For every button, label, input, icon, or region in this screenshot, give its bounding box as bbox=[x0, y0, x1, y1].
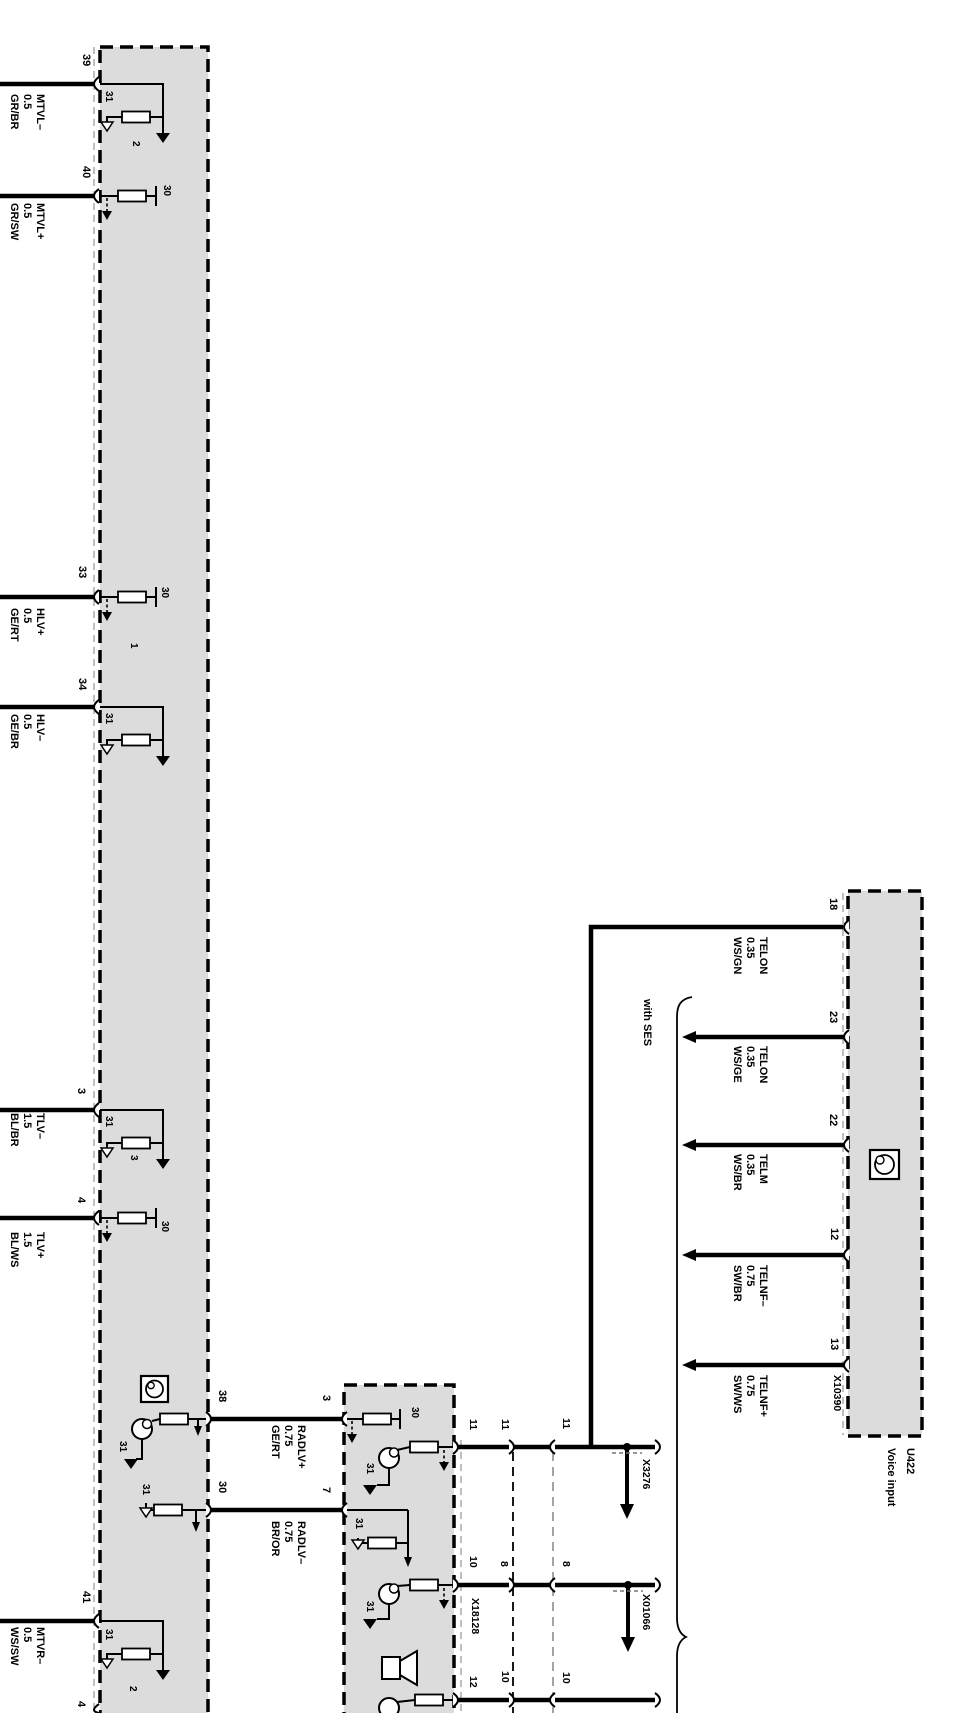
speaker-icon bbox=[141, 1376, 168, 1402]
wire-label: TELON 0.35 WS/GE bbox=[730, 1046, 769, 1083]
pin-number: 18 bbox=[826, 898, 839, 910]
wire-label: HLV+ 0.5 GE/RT bbox=[7, 608, 46, 642]
pin-number: 39 bbox=[79, 54, 92, 66]
terminal-label: 31 bbox=[364, 1463, 375, 1474]
pin-number: 3 bbox=[74, 1088, 87, 1094]
wire-label: TELON 0.35 WS/GN bbox=[730, 937, 769, 974]
terminal-label: 30 bbox=[159, 1221, 170, 1232]
terminal-label: 31 bbox=[117, 1441, 128, 1452]
pin-number: 8 bbox=[497, 1561, 510, 1567]
pin-number: 11 bbox=[466, 1419, 479, 1430]
wire-label: TELM 0.35 WS/BR bbox=[730, 1154, 769, 1191]
component-name: Voice input bbox=[884, 1448, 897, 1506]
terminal-label: 31 bbox=[103, 713, 114, 724]
pin-number: 41 bbox=[79, 1591, 92, 1603]
pin-number: 11 bbox=[498, 1419, 511, 1430]
pin-number: 33 bbox=[75, 566, 88, 578]
pin-number: 11 bbox=[559, 1418, 572, 1429]
component-label: 2 bbox=[127, 1686, 138, 1692]
pin-number: 8 bbox=[559, 1561, 572, 1567]
option-note: with SES bbox=[640, 999, 653, 1046]
pin-number: 4 bbox=[74, 1701, 87, 1707]
wire-label: RADLV+ 0.75 GE/RT bbox=[268, 1425, 307, 1469]
ses-arrowheads bbox=[682, 1031, 696, 1371]
pin-number: 12 bbox=[466, 1676, 479, 1688]
connector-label: X3276 bbox=[639, 1459, 652, 1489]
connector-label: X01066 bbox=[639, 1594, 652, 1630]
left-speaker-wires bbox=[0, 84, 94, 1621]
wiring-diagram-page: 39 40 33 34 3 4 41 4 MTVL– 0.5 GR/BR MTV… bbox=[0, 0, 964, 1713]
pin-number: 23 bbox=[826, 1011, 839, 1023]
pin-number: 13 bbox=[827, 1338, 840, 1350]
pin-number: 10 bbox=[498, 1671, 511, 1683]
component-id: U422 bbox=[903, 1448, 916, 1474]
component-label: 2 bbox=[130, 141, 141, 147]
pin-number: 3 bbox=[319, 1395, 332, 1401]
terminal-label: 30 bbox=[159, 587, 170, 598]
pin-number: 22 bbox=[826, 1114, 839, 1126]
wire-label: TELNF+ 0.75 SW/WS bbox=[730, 1375, 769, 1417]
wire-label: HLV– 0.5 GE/BR bbox=[7, 714, 46, 749]
pin-number: 38 bbox=[215, 1390, 228, 1402]
component-label: 1 bbox=[128, 643, 139, 649]
left-amplifier-box bbox=[100, 47, 208, 1713]
pin-number: 10 bbox=[466, 1556, 479, 1568]
wire-label: MTVR– 0.5 WS/SW bbox=[7, 1627, 46, 1666]
diagram-graphics bbox=[0, 0, 964, 1713]
pin-number: 10 bbox=[559, 1672, 572, 1684]
component-label: 3 bbox=[128, 1155, 139, 1161]
wire-label: MTVL– 0.5 GR/BR bbox=[7, 94, 46, 130]
pin-number: 12 bbox=[827, 1228, 840, 1240]
pin-number: 30 bbox=[215, 1481, 228, 1493]
wire-label: MTVL+ 0.5 GR/SW bbox=[7, 203, 46, 240]
terminal-label: 31 bbox=[103, 91, 114, 102]
wire-label: TLV– 1.5 BL/BR bbox=[7, 1113, 46, 1147]
terminal-label: 31 bbox=[140, 1484, 151, 1495]
pin-number: 40 bbox=[79, 166, 92, 178]
connector-label: X18128 bbox=[468, 1598, 481, 1634]
pin-number: 7 bbox=[319, 1487, 332, 1493]
wire-label: TLV+ 1.5 BL/WS bbox=[7, 1232, 46, 1267]
pin-number: 4 bbox=[74, 1197, 87, 1203]
terminal-label: 31 bbox=[364, 1601, 375, 1612]
microphone-icon bbox=[870, 1150, 899, 1179]
with-ses-bracket bbox=[677, 997, 692, 1713]
connector-label: X10390 bbox=[830, 1375, 843, 1411]
ses-wires bbox=[694, 1037, 844, 1365]
loudspeaker-icon bbox=[382, 1651, 417, 1685]
terminal-label: 30 bbox=[409, 1407, 420, 1418]
pin-number: 34 bbox=[75, 678, 88, 690]
terminal-label: 31 bbox=[103, 1629, 114, 1640]
wire-label: TELNF– 0.75 SW/BR bbox=[730, 1265, 769, 1307]
terminal-label: 31 bbox=[103, 1116, 114, 1127]
terminal-label: 31 bbox=[353, 1518, 364, 1529]
wire-label: RADLV– 0.75 BR/OR bbox=[268, 1521, 307, 1564]
offpage-arrow-x3276 bbox=[612, 1443, 642, 1519]
terminal-label: 30 bbox=[161, 185, 172, 196]
